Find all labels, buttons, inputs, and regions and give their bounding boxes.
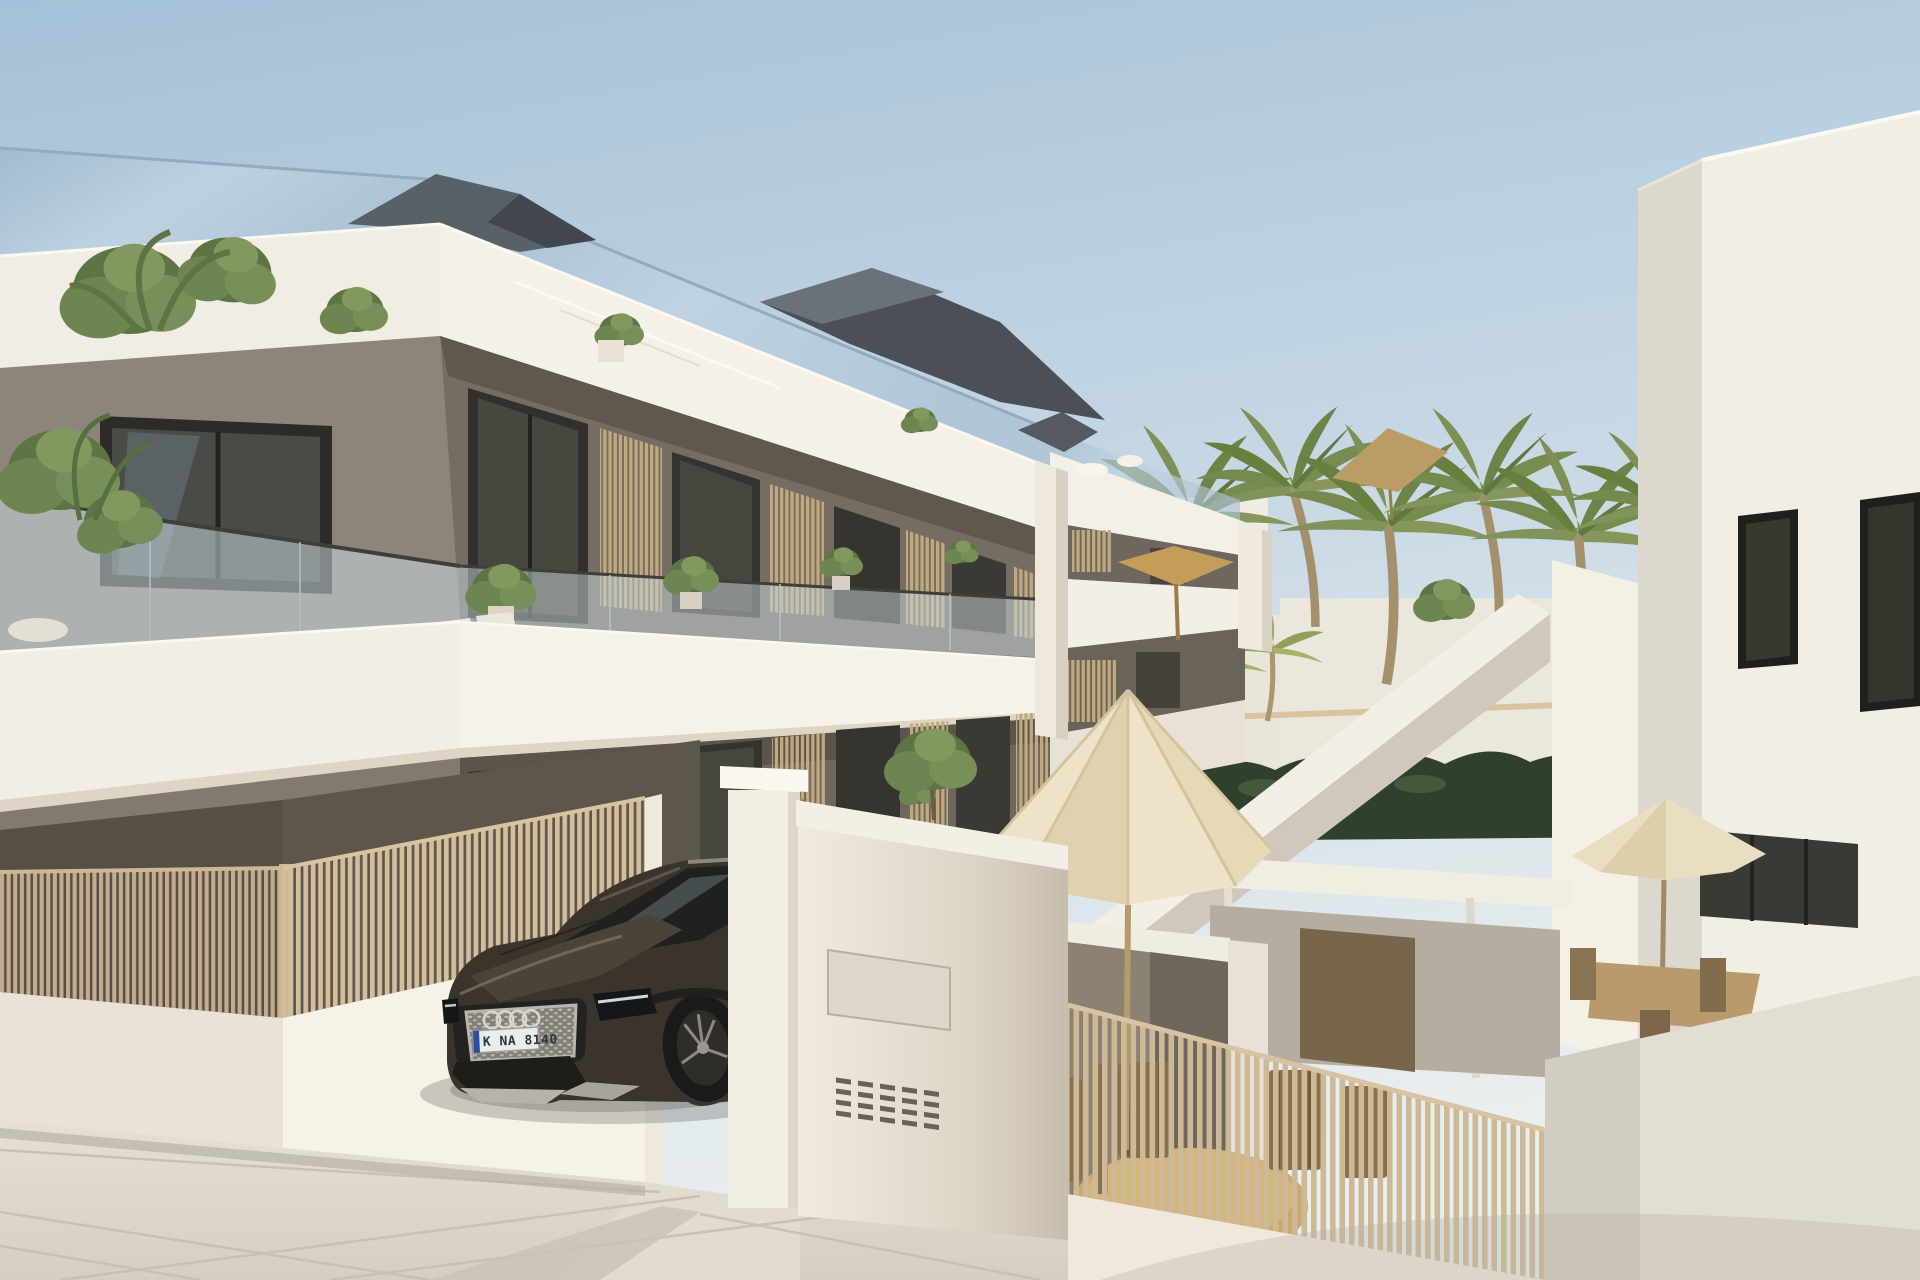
render-canvas: K NA 8140 bbox=[0, 0, 1920, 1280]
gate-pillar-cap bbox=[720, 766, 808, 792]
fence-slats-left bbox=[0, 868, 283, 1018]
mailbox-wall bbox=[796, 800, 1068, 1240]
license-plate-text: K NA 8140 bbox=[483, 1032, 558, 1050]
eu-strip bbox=[473, 1031, 480, 1053]
roof-furniture bbox=[1076, 463, 1108, 477]
scene: K NA 8140 bbox=[0, 0, 1920, 1280]
